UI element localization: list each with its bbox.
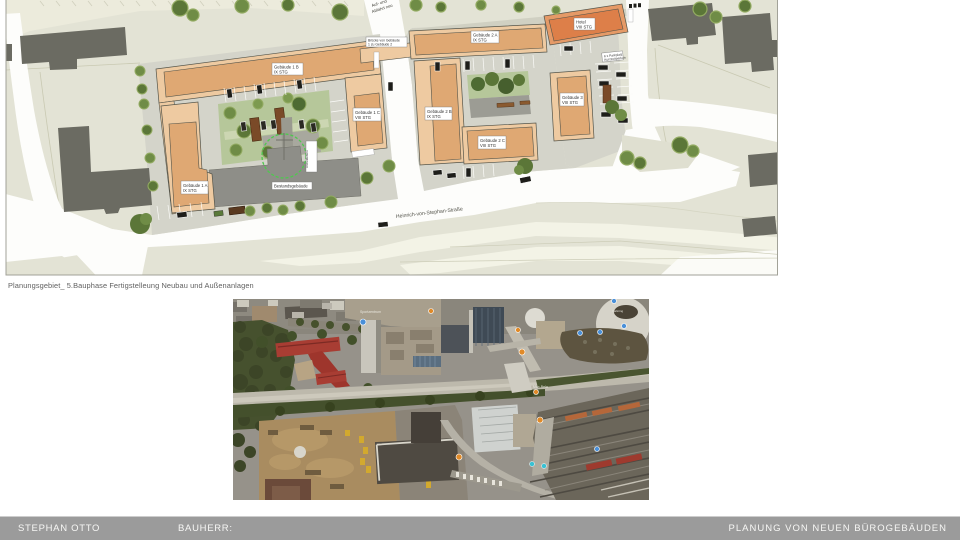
svg-text:Bestandsgebäude: Bestandsgebäude xyxy=(274,184,308,189)
svg-text:BAUHERR:: BAUHERR: xyxy=(178,523,233,534)
svg-text:Sportzentrum: Sportzentrum xyxy=(360,310,381,314)
svg-text:IX STG: IX STG xyxy=(473,38,487,43)
svg-text:IX STG: IX STG xyxy=(427,114,441,119)
svg-text:PLANUNG VON NEUEN BÜROGEBÄUDEN: PLANUNG VON NEUEN BÜROGEBÄUDEN xyxy=(729,523,947,534)
svg-text:Max-Bela: Max-Bela xyxy=(533,385,548,389)
svg-text:STEPHAN OTTO: STEPHAN OTTO xyxy=(18,523,100,534)
svg-text:Parkring: Parkring xyxy=(612,309,624,313)
svg-text:VIII STG: VIII STG xyxy=(562,100,578,105)
svg-text:Anmeldebüro: Anmeldebüro xyxy=(305,150,309,168)
svg-text:IX STG: IX STG xyxy=(183,188,197,193)
svg-text:IX STG: IX STG xyxy=(274,70,288,75)
svg-text:VIII STG: VIII STG xyxy=(576,25,592,30)
svg-text:1 zu Gebäude 2: 1 zu Gebäude 2 xyxy=(368,43,392,47)
svg-text:Planungsgebiet_ 5.Bauphase Fer: Planungsgebiet_ 5.Bauphase Fertigstelleu… xyxy=(8,281,254,290)
svg-text:VIII STG: VIII STG xyxy=(480,143,496,148)
svg-text:VIII STG: VIII STG xyxy=(355,115,371,120)
